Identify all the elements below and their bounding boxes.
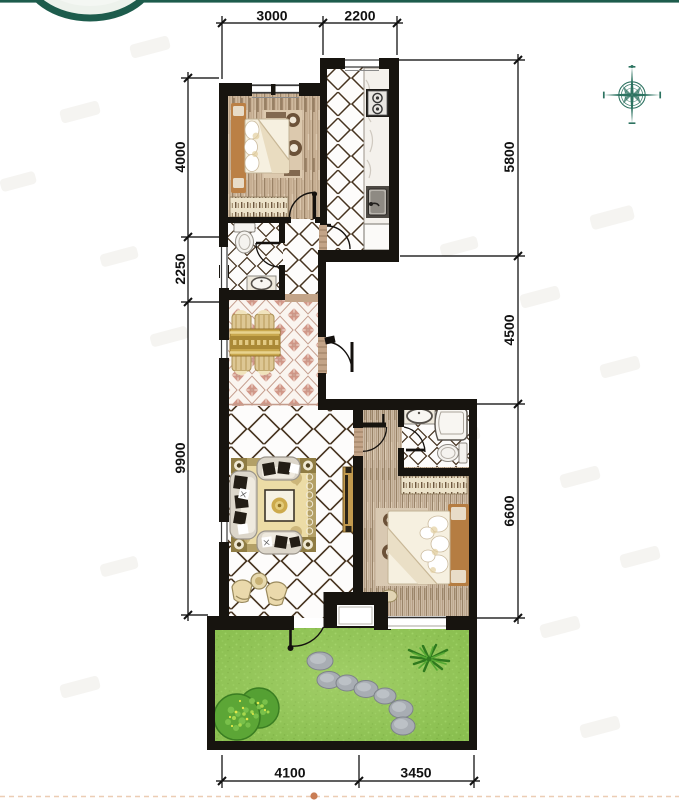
svg-text:4100: 4100 xyxy=(274,765,305,781)
svg-text:2200: 2200 xyxy=(344,8,375,24)
svg-text:6600: 6600 xyxy=(501,495,517,526)
svg-text:2250: 2250 xyxy=(172,253,188,284)
svg-text:9900: 9900 xyxy=(172,442,188,473)
svg-text:3000: 3000 xyxy=(256,8,287,24)
svg-text:3450: 3450 xyxy=(400,765,431,781)
svg-text:5800: 5800 xyxy=(501,141,517,172)
svg-text:4000: 4000 xyxy=(172,141,188,172)
svg-text:4500: 4500 xyxy=(501,314,517,345)
